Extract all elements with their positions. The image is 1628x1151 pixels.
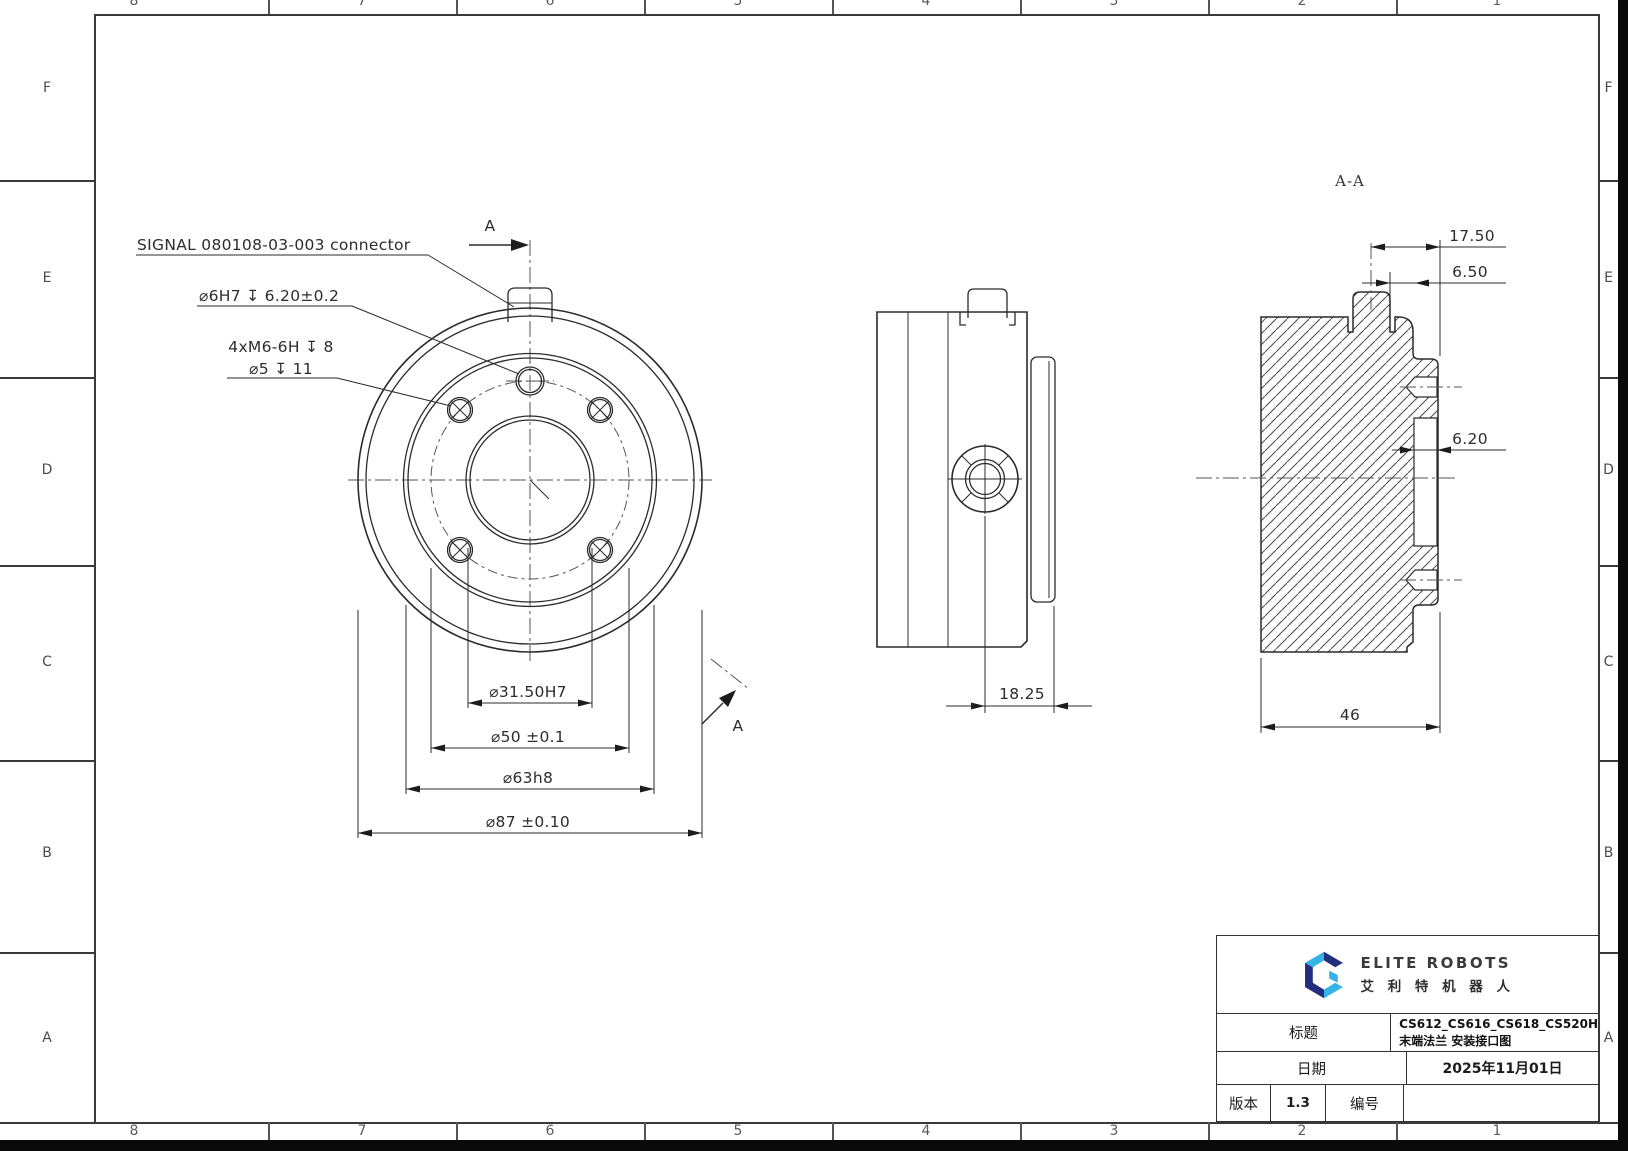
- section-arrow-bottom-label: A: [733, 717, 744, 735]
- brand-name-en: ELITE ROBOTS: [1361, 954, 1515, 972]
- section-spigot-wall: [1414, 418, 1437, 546]
- side-dimension: [946, 516, 1092, 713]
- number-value: [1404, 1085, 1598, 1121]
- section-title: A-A: [1334, 172, 1365, 190]
- connector-leader-label: SIGNAL 080108-03-003 connector: [137, 236, 411, 254]
- section-arrow-top-label: A: [485, 217, 496, 235]
- date-label: 日期: [1217, 1052, 1407, 1084]
- title-value-line2: 末端法兰 安装接口图: [1399, 1033, 1511, 1049]
- date-value: 2025年11月01日: [1407, 1052, 1598, 1084]
- version-value: 1.3: [1271, 1085, 1326, 1121]
- brand-name-cn: 艾 利 特 机 器 人: [1361, 975, 1515, 995]
- section-arrow-top: A: [469, 217, 529, 251]
- dowel-hole-label: ⌀6H7 ↧ 6.20±0.2: [199, 287, 339, 305]
- front-centerlines: [348, 240, 712, 665]
- dim-overall-depth: 46: [1340, 706, 1360, 724]
- center-tick: [530, 480, 549, 499]
- date-row: 日期 2025年11月01日: [1217, 1052, 1598, 1085]
- title-block-logo-row: ELITE ROBOTS 艾 利 特 机 器 人: [1217, 936, 1598, 1014]
- side-mounting-flange: [1031, 357, 1055, 602]
- front-view: SIGNAL 080108-03-003 connector ⌀6H7 ↧ 6.…: [136, 217, 749, 838]
- dim-spigot-wall: 6.20: [1452, 430, 1488, 448]
- version-row: 版本 1.3 编号: [1217, 1085, 1598, 1121]
- bolt-holes-label-line1: 4xM6-6H ↧ 8: [228, 338, 333, 356]
- title-value: CS612_CS616_CS618_CS520H 末端法兰 安装接口图: [1391, 1014, 1598, 1051]
- dim-bolt-circle: ⌀50 ±0.1: [491, 728, 565, 746]
- version-label: 版本: [1217, 1085, 1271, 1121]
- section-view: A-A: [1196, 172, 1506, 733]
- bolt-holes-label-line2: ⌀5 ↧ 11: [249, 360, 313, 378]
- side-connector-bump: [960, 289, 1015, 325]
- side-hole-boss: [948, 444, 1022, 514]
- title-row: 标题 CS612_CS616_CS618_CS520H 末端法兰 安装接口图: [1217, 1014, 1598, 1052]
- drawing-sheet: 8 7 6 5 4 3 2 1 8 7 6 5 4 3 2 1 F E D C …: [0, 0, 1628, 1151]
- side-view: 18.25: [877, 289, 1092, 713]
- section-body: [1261, 292, 1438, 652]
- dim-hole-to-face: 18.25: [999, 685, 1045, 703]
- dim-bore: ⌀31.50H7: [489, 683, 567, 701]
- title-value-line1: CS612_CS616_CS618_CS520H: [1399, 1016, 1598, 1032]
- title-block: ELITE ROBOTS 艾 利 特 机 器 人 标题 CS612_CS616_…: [1216, 935, 1599, 1122]
- brand-wordmark: ELITE ROBOTS 艾 利 特 机 器 人: [1361, 954, 1515, 995]
- dim-connector-center: 17.50: [1449, 227, 1495, 245]
- dim-flange: ⌀87 ±0.10: [486, 813, 570, 831]
- dim-connector-edge: 6.50: [1452, 263, 1488, 281]
- section-arrow-bottom: A: [702, 659, 749, 735]
- title-label: 标题: [1217, 1014, 1391, 1051]
- elite-robots-logo-icon: [1301, 950, 1347, 1000]
- dim-spigot: ⌀63h8: [503, 769, 553, 787]
- number-label: 编号: [1326, 1085, 1404, 1121]
